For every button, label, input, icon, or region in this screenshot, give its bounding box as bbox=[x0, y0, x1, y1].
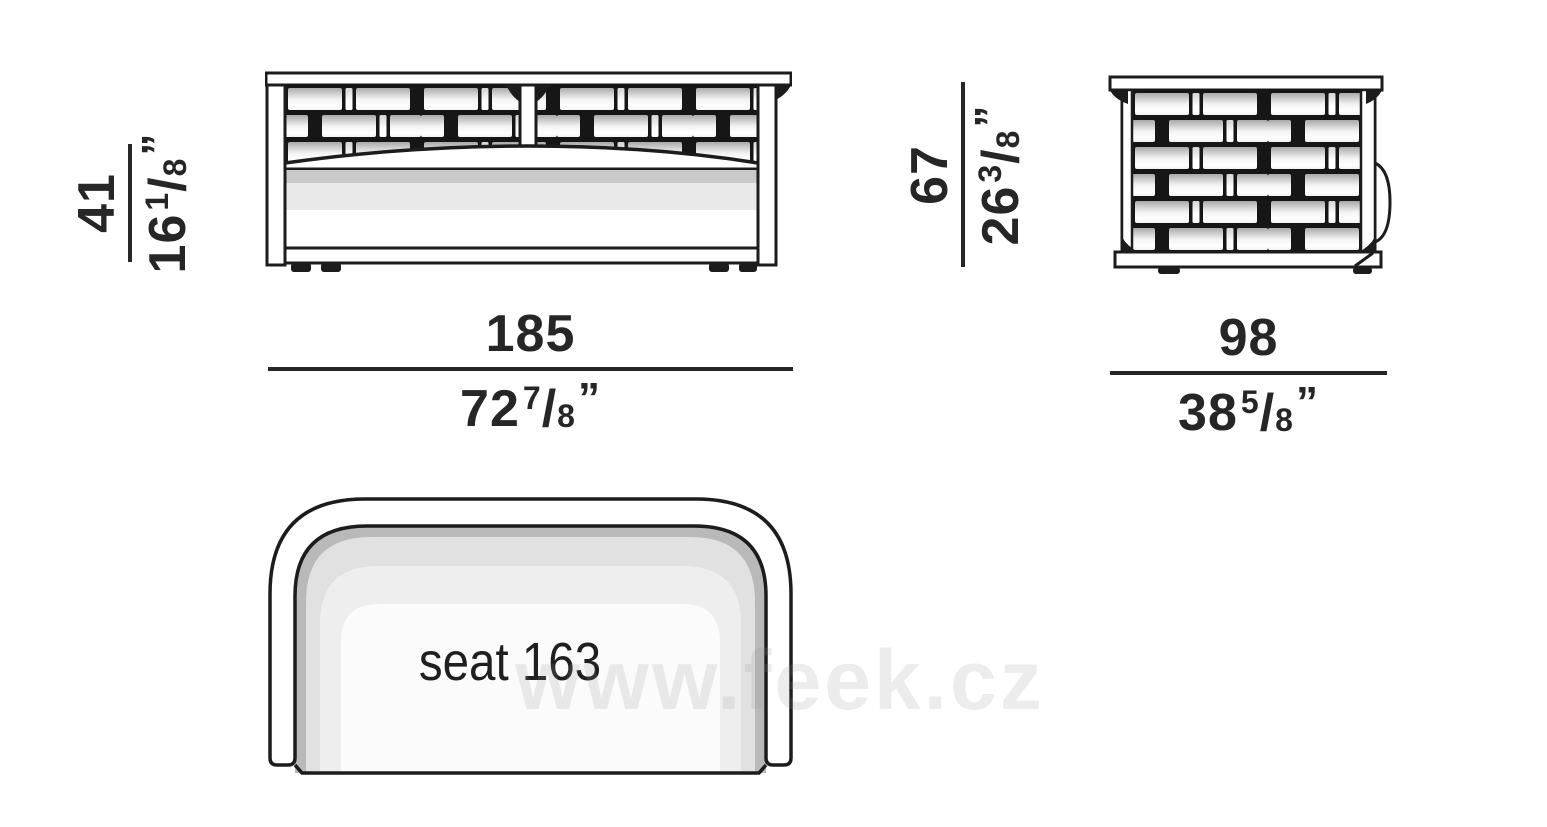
dimension-front-height: 41 161/8” bbox=[70, 118, 200, 288]
front-left-post bbox=[267, 85, 285, 265]
side-view-drawing bbox=[1103, 68, 1395, 276]
front-width-cm: 185 bbox=[268, 307, 793, 371]
side-height-inch: 263/8” bbox=[965, 80, 1037, 270]
front-height-cm: 41 bbox=[70, 144, 132, 262]
dimension-side-height: 67 263/8” bbox=[903, 80, 1033, 270]
side-seat-bulge bbox=[1375, 163, 1390, 242]
side-height-cm: 67 bbox=[903, 83, 965, 268]
side-depth-inch: 385/8” bbox=[1110, 375, 1387, 449]
front-center-post bbox=[520, 85, 536, 149]
front-bottom-rail bbox=[285, 248, 758, 263]
dimension-front-width: 185 727/8” bbox=[268, 307, 793, 445]
side-top-rail bbox=[1110, 77, 1382, 90]
side-bottom-rail bbox=[1115, 252, 1381, 267]
front-width-inch: 727/8” bbox=[268, 371, 793, 445]
side-depth-cm: 98 bbox=[1110, 311, 1387, 375]
front-right-post bbox=[758, 85, 776, 265]
seat-dimension-label: seat 163 bbox=[387, 632, 633, 692]
front-platform-light-band bbox=[285, 183, 758, 210]
front-view-drawing bbox=[265, 70, 792, 275]
dimension-side-depth: 98 385/8” bbox=[1110, 311, 1387, 449]
front-height-inch: 161/8” bbox=[132, 118, 204, 288]
furniture-dimension-diagram: 41 161/8” 67 263/8” 185 727/8” 98 385/8”… bbox=[0, 0, 1547, 827]
front-platform-dark-band bbox=[285, 170, 758, 183]
front-top-rail bbox=[266, 73, 791, 85]
side-weave-panel bbox=[1132, 90, 1361, 252]
